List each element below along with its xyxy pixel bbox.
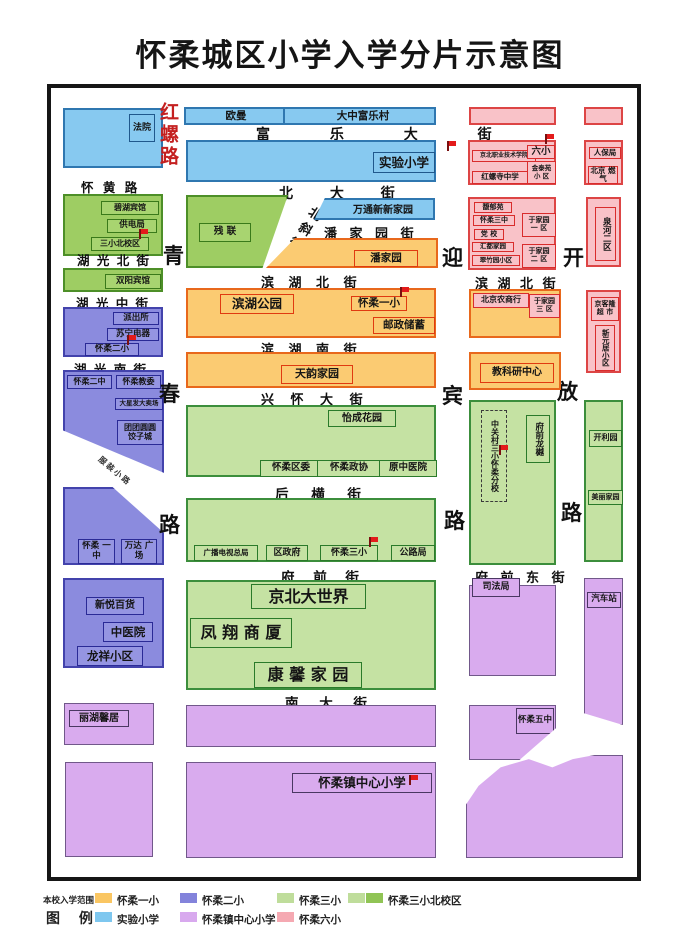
label-cuizhu: 翠竹园小区 <box>472 255 520 266</box>
zone-sifaju: 司法局 <box>469 585 556 676</box>
label-bihu-hotel: 碧湖宾馆 <box>101 201 159 215</box>
label-gongluju: 公路局 <box>391 545 435 561</box>
zone-north-campus: 碧湖宾馆 供电局 三小北校区 <box>63 194 163 256</box>
road-kaifang-3: 路 <box>561 497 582 527</box>
label-fuyuyuan: 馥郁苑 <box>474 202 512 213</box>
flag-erxiao <box>127 335 137 345</box>
road-qingchun-2: 春 <box>159 378 180 408</box>
label-wanda: 万达 广场 <box>121 539 157 564</box>
road-hongluo: 红螺路 <box>155 102 182 172</box>
zone-zhongguancun: 中关村三小怀柔分校 府前龙樾 <box>469 400 556 565</box>
label-ouman: 欧曼 <box>211 110 261 124</box>
label-lihu-xinju: 丽湖馨居 <box>69 710 129 727</box>
zone-nongshang: 北京农商行 于家园 三 区 <box>469 289 561 338</box>
road-yingbin-2: 宾 <box>442 380 463 410</box>
label-huairou-sanxiao: 怀柔三小 <box>320 545 378 561</box>
label-xinyue: 新悦百货 <box>86 597 144 615</box>
label-kangxin: 康 馨 家 园 <box>254 662 362 688</box>
label-longxiang: 龙祥小区 <box>77 646 143 666</box>
label-huairou-erzhong: 怀柔二中 <box>67 375 112 389</box>
flag-liuxiao <box>545 134 555 144</box>
label-panjiayuan: 潘家园 <box>354 250 418 267</box>
label-power-bureau: 供电局 <box>107 219 157 233</box>
label-canlian: 残 联 <box>199 223 251 242</box>
legend-swatch-sanxiao-north-2 <box>366 893 383 903</box>
legend-swatch-yixiao <box>95 893 112 903</box>
legend-title: 图 例 <box>46 908 100 928</box>
legend-label-center: 怀柔镇中心小学 <box>202 912 276 927</box>
zone-panjiayuan: 潘家园 <box>266 238 438 268</box>
label-jintai: 金泰苑 小 区 <box>527 161 556 184</box>
zone-quzhengfu: 广播电视总局 区政府 怀柔三小 公路局 <box>186 498 436 562</box>
legend-swatch-erxiao <box>180 893 197 903</box>
label-huairou-yixiao: 怀柔一小 <box>351 296 407 311</box>
label-dangxiao: 党 校 <box>474 229 504 240</box>
legend-swatch-sanxiao <box>277 893 294 903</box>
legend-swatch-shiyan <box>95 912 112 922</box>
zone-center-school: 怀柔镇中心小学 <box>186 762 436 858</box>
zone-wuzhong: 怀柔五中 <box>469 705 556 760</box>
road-huguang-north: 湖 光 北 街 <box>77 250 149 269</box>
label-nongshang: 北京农商行 <box>473 293 529 308</box>
label-quzhengfu: 区政府 <box>266 545 308 561</box>
legend-label-yixiao: 怀柔一小 <box>117 893 159 908</box>
label-wantong: 万通新新家园 <box>338 203 428 218</box>
legend-swatch-sanxiao-north-1 <box>348 893 365 903</box>
label-shuangyang-hotel: 双阳宾馆 <box>105 274 161 289</box>
label-police-station: 派出所 <box>113 312 159 325</box>
label-shiyan-xiaoxue: 实验小学 <box>373 152 435 173</box>
zone-shuangyang: 双阳宾馆 <box>63 268 163 292</box>
zone-erxiao-shops: 新悦百货 中医院 龙祥小区 <box>63 578 164 668</box>
flag-zhongguancun <box>499 445 509 455</box>
label-hongluosi: 红螺寺中学 <box>472 171 528 184</box>
zone-jingkelong: 京客隆 超 市 新元居小区 <box>586 290 621 373</box>
legend-swatch-center <box>180 912 197 922</box>
label-zhongyiyuan: 中医院 <box>103 622 153 642</box>
label-huairou-wuzhong: 怀柔五中 <box>516 708 554 734</box>
zone-tianyun: 天韵家园 <box>186 352 436 388</box>
zone-center-southwest <box>65 762 153 857</box>
label-jingkelong: 京客隆 超 市 <box>591 297 619 321</box>
road-kaifang-1: 开 <box>563 242 584 272</box>
zone-yicheng: 怡成花园 怀柔区委 怀柔政协 原中医院 <box>186 405 436 477</box>
zone-binhu-park: 滨湖公园 怀柔一小 邮政储蓄 <box>186 288 436 338</box>
zone-erxiao-mid: 怀柔二中 怀柔教委 大星发大卖场 团团圆圆 饺子城 <box>63 370 164 476</box>
map-canvas: 法院 红螺路 怀 黄 路 碧湖宾馆 供电局 三小北校区 湖 光 北 街 双阳宾馆… <box>47 84 641 881</box>
label-yujiayuan-2: 于家园 二 区 <box>522 244 556 268</box>
flag-center-school <box>409 775 419 785</box>
road-qingchun-3: 路 <box>159 509 180 539</box>
zone-wantong: 万通新新家园 <box>314 198 435 220</box>
label-renbao: 人保局 <box>589 147 621 159</box>
legend: 本校入学范围 图 例 怀柔一小 怀柔二小 怀柔三小 怀柔三小北校区 实验小学 怀… <box>0 884 700 943</box>
zone-jiaokeyan: 教科研中心 <box>469 352 561 390</box>
label-jingbei-dashijie: 京北大世界 <box>251 584 366 609</box>
label-fuqian-longyue: 府前龙樾 <box>526 415 550 463</box>
flag-yixiao <box>400 287 410 297</box>
zone-pink-top-mid <box>469 107 556 125</box>
zone-liuxiao: 京北职业技术学院 六小 金泰苑 小 区 红螺寺中学 <box>468 140 556 185</box>
legend-label-sanxiao-north: 怀柔三小北校区 <box>388 893 462 908</box>
zone-renbao: 人保局 北京 燃气 <box>584 140 623 185</box>
legend-swatch-liuxiao <box>277 912 294 922</box>
label-fengxiang: 凤 翔 商 厦 <box>190 618 292 648</box>
zone-ouman: 欧曼 <box>184 107 285 125</box>
label-yujiayuan-3: 于家园 三 区 <box>529 294 560 318</box>
label-sanxiao-north-campus: 三小北校区 <box>91 237 149 251</box>
zone-canlian: 残 联 <box>186 195 288 268</box>
label-tuantuan: 团团圆圆 饺子城 <box>117 420 163 445</box>
label-xinyuanju: 新元居小区 <box>595 325 615 371</box>
label-sifaju: 司法局 <box>472 578 520 597</box>
legend-label-liuxiao: 怀柔六小 <box>299 912 341 927</box>
zone-quanhe: 泉河二区 <box>586 197 621 267</box>
zone-center-southeast <box>466 755 623 858</box>
legend-label-erxiao: 怀柔二小 <box>202 893 244 908</box>
label-tianyun: 天韵家园 <box>281 365 353 384</box>
legend-label-sanxiao: 怀柔三小 <box>299 893 341 908</box>
label-jiaokeyan: 教科研中心 <box>480 363 554 383</box>
label-yicheng: 怡成花园 <box>328 410 396 427</box>
flag-sanxiao <box>369 537 379 547</box>
zone-fuyuyuan: 馥郁苑 怀柔三中 党 校 汇都家园 翠竹园小区 于家园 一 区 于家园 二 区 <box>468 197 556 270</box>
road-yingbin-3: 路 <box>444 505 465 535</box>
flag-sanxiao-north <box>139 229 149 239</box>
label-binhu-park: 滨湖公园 <box>220 294 294 314</box>
label-liuxiao: 六小 <box>527 145 555 159</box>
label-kailiyuan: 开利园 <box>589 430 622 447</box>
label-qichezhan: 汽车站 <box>587 592 621 608</box>
zone-kailiyuan: 开利园 美丽家园 <box>584 400 623 562</box>
page-title: 怀柔城区小学入学分片示意图 <box>0 30 700 75</box>
road-yingbin-1: 迎 <box>442 242 463 272</box>
page: 怀柔城区小学入学分片示意图 法院 红螺路 怀 黄 路 碧湖宾馆 供电局 三小北校… <box>0 0 700 943</box>
road-lane-label: 服装小路 <box>96 454 134 488</box>
zone-qichezhan: 汽车站 <box>584 578 623 725</box>
label-daxingfa: 大星发大卖场 <box>115 398 163 410</box>
label-quanhe-erqu: 泉河二区 <box>595 207 616 261</box>
zone-lihu: 丽湖馨居 <box>64 703 154 745</box>
label-huairou-sanzhong: 怀柔三中 <box>473 215 515 226</box>
label-dazhong-fulecun: 大中富乐村 <box>323 110 403 124</box>
label-yuan-zhongyiyuan: 原中医院 <box>379 460 437 477</box>
zone-erxiao-north: 派出所 苏宁电器 怀柔二小 <box>63 307 163 357</box>
zone-dazhong-fulecun: 大中富乐村 <box>283 107 436 125</box>
zone-center-strip <box>186 705 436 747</box>
label-youzheng: 邮政储蓄 <box>373 317 435 334</box>
zone-shiyan: 实验小学 <box>186 140 436 182</box>
legend-scope-label: 本校入学范围 <box>43 894 94 906</box>
label-court: 法院 <box>129 114 155 142</box>
label-yujiayuan-1: 于家园 一 区 <box>522 213 556 237</box>
label-zhongguancun-branch: 中关村三小怀柔分校 <box>481 410 507 502</box>
zone-pink-top-right <box>584 107 623 125</box>
zone-court: 法院 <box>63 108 163 168</box>
legend-label-shiyan: 实验小学 <box>117 912 159 927</box>
label-guangbo: 广播电视总局 <box>194 545 258 561</box>
road-qingchun-1: 青 <box>163 240 184 270</box>
label-huairou-yizhong: 怀柔 一中 <box>78 539 115 564</box>
label-zhengxie: 怀柔政协 <box>317 460 381 477</box>
label-huidu: 汇都家园 <box>472 242 514 252</box>
label-ranqi: 北京 燃气 <box>588 166 618 184</box>
label-quwei: 怀柔区委 <box>260 460 322 477</box>
zone-jingbei-world: 京北大世界 凤 翔 商 厦 康 馨 家 园 <box>186 580 436 690</box>
label-meili-jiayuan: 美丽家园 <box>588 490 623 505</box>
label-jiaowei: 怀柔教委 <box>116 375 161 389</box>
flag-shiyan <box>447 141 457 151</box>
zone-erxiao-south: 怀柔 一中 万达 广场 <box>63 487 164 565</box>
